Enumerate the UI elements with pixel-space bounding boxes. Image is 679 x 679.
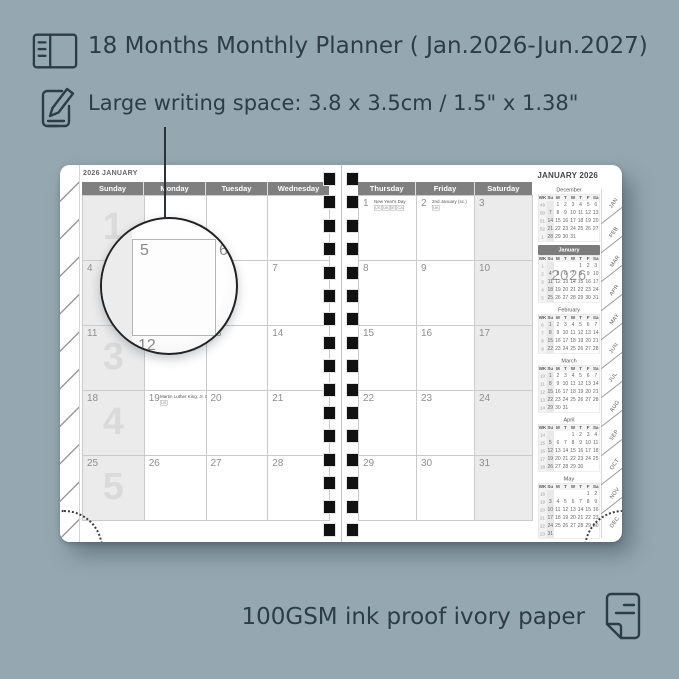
mini-cal-cell: 31 (569, 233, 577, 241)
mini-cal-cell: 23 (577, 455, 585, 463)
mini-cal-cell (584, 404, 592, 412)
mini-cal-cell: 7 (547, 209, 555, 217)
calendar-week-row: 8910 (359, 261, 533, 326)
mini-cal-cell: 25 (547, 294, 555, 302)
mini-cal-cell: 6 (554, 439, 562, 447)
mini-cal-cell: 3 (562, 372, 570, 380)
mini-cal-cell: 18 (554, 514, 562, 522)
mini-cal-cell: 26 (547, 463, 555, 471)
mini-cal-cell: 26 (554, 294, 562, 302)
date-number: 25 (87, 458, 98, 469)
mini-cal-cell: 9 (562, 209, 570, 217)
mini-cal-cell: 31 (562, 404, 570, 412)
mini-cal-cell: 22 (547, 345, 555, 353)
mini-cal-cell: 22 (577, 286, 585, 294)
date-number: 1 (363, 198, 369, 209)
mini-cal-cell: 29 (554, 233, 562, 241)
mini-cal-cell: 12 (547, 447, 555, 455)
mini-cal-cell: 16 (539, 447, 547, 455)
mini-cal-cell: 26 (562, 522, 570, 530)
calendar-day-cell: 27 (207, 456, 269, 521)
mini-cal-cell: 16 (554, 337, 562, 345)
binding-hole (324, 313, 335, 325)
mini-cal-cell: 7 (577, 498, 585, 506)
mini-cal-cell: 29 (569, 463, 577, 471)
mini-cal-cell: 25 (569, 345, 577, 353)
notebook-icon (31, 28, 79, 74)
mini-calendar: JanuaryWKSuMTWTFSa1123245678910311121314… (538, 245, 600, 303)
mini-cal-cell: 15 (584, 506, 592, 514)
mini-cal-cell: 11 (554, 506, 562, 514)
mini-cal-cell: 15 (554, 217, 562, 225)
binding-hole (324, 290, 335, 302)
binding-hole (347, 337, 358, 349)
mini-cal-cell: 27 (562, 294, 570, 302)
mini-cal-cell: 4 (569, 321, 577, 329)
date-number: 3 (479, 198, 485, 209)
mini-cal-cell: 26 (577, 396, 585, 404)
date-number: 19 (149, 393, 160, 404)
mini-cal-cell: 52 (539, 225, 547, 233)
date-number: 2 (421, 198, 427, 209)
magnified-below-date: 12 (138, 337, 156, 355)
calendar-day-cell: 17 (475, 326, 533, 391)
mini-cal-cell: 11 (569, 380, 577, 388)
mini-cal-cell: 30 (577, 463, 585, 471)
calendar-day-cell: 21 (268, 391, 330, 456)
binding-hole (347, 454, 358, 466)
mini-calendar: AprilWKSuMTWTFSa141234155678910111612131… (538, 416, 600, 472)
mini-cal-cell: 10 (539, 372, 547, 380)
feature-line-2: Large writing space: 3.8 x 3.5cm / 1.5" … (88, 91, 578, 115)
calendar-day-cell: 22 (359, 391, 417, 456)
day-header-cell: Friday (415, 182, 473, 195)
mini-cal-cell: 28 (592, 345, 600, 353)
mini-cal-cell: 14 (562, 447, 570, 455)
mini-cal-cell: 5 (584, 201, 592, 209)
magnifier-circle: 5 6 12 (100, 217, 238, 355)
mini-cal-cell: 5 (577, 321, 585, 329)
date-number: 22 (363, 393, 374, 404)
binding-hole (347, 220, 358, 232)
calendar-day-cell: 10 (475, 261, 533, 326)
country-code-badge: US (374, 205, 382, 211)
date-number: 11 (87, 328, 97, 339)
binding-hole (347, 477, 358, 489)
binding-hole (324, 501, 335, 513)
calendar-day-cell: 15 (359, 326, 417, 391)
mini-cal-cell (592, 463, 600, 471)
calendar-week-row: 222324 (359, 391, 533, 456)
mini-cal-cell: 12 (539, 388, 547, 396)
calendar-day-cell (268, 196, 330, 261)
calendar-day-cell: 418 (83, 391, 145, 456)
mini-cal-cell: 7 (592, 372, 600, 380)
mini-cal-cell: 8 (547, 329, 555, 337)
calendar-week-row: 525262728 (83, 456, 330, 521)
mini-cal-cell: 17 (584, 447, 592, 455)
mini-cal-cell: 19 (562, 514, 570, 522)
calendar-day-cell: 23 (417, 391, 475, 456)
date-number: 29 (363, 458, 374, 469)
mini-cal-cell: 1 (584, 490, 592, 498)
calendar-day-cell: 3 (475, 196, 533, 261)
mini-cal-cell: 14 (577, 506, 585, 514)
mini-calendar: DecemberWKSuMTWTFSa491234565078910111213… (538, 186, 600, 242)
calendar-week-row: 151617 (359, 326, 533, 391)
mini-cal-cell: 20 (569, 514, 577, 522)
mini-cal-cell: 17 (569, 217, 577, 225)
binding-hole (347, 313, 358, 325)
date-number: 16 (421, 328, 432, 339)
mini-cal-cell: 19 (539, 498, 547, 506)
country-code-badge: UK (432, 205, 440, 211)
mini-cal-cell: 16 (562, 217, 570, 225)
binding-hole (324, 196, 335, 208)
mini-cal-cell: 3 (569, 201, 577, 209)
mini-cal-cell: 19 (584, 217, 592, 225)
mini-cal-cell (554, 530, 562, 538)
mini-cal-cell: 6 (584, 372, 592, 380)
mini-cal-cell: 26 (584, 225, 592, 233)
mini-cal-cell: 14 (592, 380, 600, 388)
mini-calendar-title: February (538, 306, 600, 314)
mini-cal-cell: 10 (562, 380, 570, 388)
mini-cal-cell: 18 (577, 217, 585, 225)
mini-cal-cell: 15 (547, 388, 555, 396)
mini-cal-cell: 12 (577, 380, 585, 388)
calendar-day-cell: 7 (268, 261, 330, 326)
mini-cal-cell: 2 (577, 431, 585, 439)
left-day-header-row: SundayMondayTuesdayWednesday (82, 182, 329, 195)
mini-calendar: MarchWKSuMTWTFSa101234567118910111213141… (538, 357, 600, 413)
month-tab-label: MAY (608, 312, 620, 325)
mini-cal-cell: 6 (539, 321, 547, 329)
calendar-day-cell: 9 (417, 261, 475, 326)
mini-cal-cell: 24 (584, 455, 592, 463)
mini-cal-cell: 11 (539, 380, 547, 388)
country-code-badge: US (160, 400, 168, 406)
mini-cal-cell: 20 (539, 506, 547, 514)
mini-cal-cell: 23 (539, 530, 547, 538)
mini-calendar-grid: WKSuMTWTFSa10123456711891011121314121516… (538, 365, 600, 413)
binding-hole (324, 430, 335, 442)
right-page-title: JANUARY 2026 (480, 171, 598, 180)
mini-cal-cell: 15 (569, 447, 577, 455)
mini-cal-cell: 13 (592, 209, 600, 217)
mini-cal-cell: 28 (577, 522, 585, 530)
mini-cal-cell: 26 (577, 345, 585, 353)
date-number: 26 (149, 458, 160, 469)
country-code-badge: UK (382, 205, 390, 211)
calendar-day-cell: 19Martin Luther King, Jr. DayUS (145, 391, 207, 456)
calendar-day-cell: 20 (207, 391, 269, 456)
month-tab-label: APR (608, 283, 620, 296)
mini-cal-cell: 14 (539, 431, 547, 439)
calendar-day-cell: 29 (359, 456, 417, 521)
mini-cal-cell: 21 (547, 225, 555, 233)
mini-cal-cell (554, 431, 562, 439)
mini-cal-cell: 2 (554, 372, 562, 380)
mini-cal-cell: 27 (569, 522, 577, 530)
mini-cal-cell: 6 (569, 498, 577, 506)
mini-cal-cell: 8 (584, 498, 592, 506)
date-number: 18 (87, 393, 98, 404)
mini-cal-cell: 4 (539, 286, 547, 294)
calendar-day-cell: 8 (359, 261, 417, 326)
page-gutter-line (341, 165, 342, 542)
mini-cal-cell: 18 (539, 490, 547, 498)
date-number: 30 (421, 458, 432, 469)
mini-cal-cell: 19 (577, 388, 585, 396)
mini-cal-cell: 5 (547, 439, 555, 447)
day-header-cell: Monday (143, 182, 205, 195)
mini-calendar-grid: WKSuMTWTFSa61234567789101112131481516171… (538, 314, 600, 354)
mini-cal-cell: 6 (592, 201, 600, 209)
mini-cal-cell: 17 (539, 455, 547, 463)
month-tab-label: SEP (608, 428, 620, 441)
holiday-note-text: Martin Luther King, Jr. Day (160, 394, 213, 399)
mini-cal-cell: 20 (592, 217, 600, 225)
mini-cal-cell: 10 (562, 329, 570, 337)
mini-cal-cell: 23 (554, 396, 562, 404)
mini-cal-cell (562, 530, 570, 538)
mini-cal-cell: 51 (539, 217, 547, 225)
mini-cal-cell: 23 (562, 225, 570, 233)
mini-cal-cell (554, 490, 562, 498)
mini-cal-cell: 22 (547, 396, 555, 404)
footer-claim: 100GSM ink proof ivory paper (180, 604, 585, 630)
mini-cal-cell: 7 (592, 321, 600, 329)
left-page-title: 2026 JANUARY (83, 170, 138, 177)
mini-cal-cell: 18 (539, 463, 547, 471)
week-number-watermark: 5 (83, 466, 144, 509)
mini-cal-cell: 11 (569, 329, 577, 337)
mini-cal-cell (547, 201, 555, 209)
day-header-cell: Tuesday (205, 182, 267, 195)
mini-cal-cell: 8 (547, 380, 555, 388)
mini-cal-cell: 24 (569, 225, 577, 233)
mini-cal-cell (592, 404, 600, 412)
mini-cal-cell: 29 (577, 294, 585, 302)
mini-cal-cell: 21 (562, 455, 570, 463)
date-number: 24 (479, 393, 490, 404)
mini-cal-cell: 19 (547, 455, 555, 463)
mini-cal-cell: 15 (539, 439, 547, 447)
calendar-day-cell: 1New Year's DayUSUKIECA (359, 196, 417, 261)
mini-cal-cell: 22 (539, 522, 547, 530)
mini-cal-cell: 9 (592, 498, 600, 506)
callout-line (164, 127, 166, 219)
day-header-cell: Thursday (358, 182, 415, 195)
mini-calendar-grid: WKSuMTWTFSa14123415567891011161213141516… (538, 424, 600, 472)
calendar-day-cell: 31 (475, 456, 533, 521)
mini-cal-cell: 28 (592, 396, 600, 404)
mini-cal-cell: 13 (539, 396, 547, 404)
mini-cal-cell: 24 (562, 396, 570, 404)
mini-cal-cell: 27 (584, 396, 592, 404)
date-number: 7 (272, 263, 278, 274)
country-code-badge: CA (396, 205, 404, 211)
mini-cal-cell (584, 463, 592, 471)
date-number: 17 (479, 328, 490, 339)
edit-note-icon (37, 82, 79, 132)
mini-cal-cell: 14 (539, 404, 547, 412)
mini-cal-cell: 6 (584, 321, 592, 329)
calendar-day-cell: 30 (417, 456, 475, 521)
binding-hole (324, 407, 335, 419)
date-number: 8 (363, 263, 369, 274)
binding-hole (347, 501, 358, 513)
mini-cal-cell: 31 (592, 294, 600, 302)
mini-cal-cell: 9 (554, 329, 562, 337)
mini-cal-cell (562, 490, 570, 498)
mini-cal-cell (547, 431, 555, 439)
mini-cal-cell: 2 (554, 321, 562, 329)
holiday-note-text: 2nd January (sc.) (432, 199, 467, 204)
binding-hole (324, 384, 335, 396)
mini-cal-cell (569, 490, 577, 498)
paper-sheet-icon (599, 590, 643, 646)
binding-hole (324, 243, 335, 255)
mini-cal-year-watermark: 2026 (541, 267, 597, 284)
mini-cal-cell: 19 (577, 337, 585, 345)
mini-cal-cell: 13 (569, 506, 577, 514)
holiday-note-text: New Year's Day (374, 199, 406, 204)
calendar-week-row: 1New Year's DayUSUKIECA22nd January (sc.… (359, 196, 533, 261)
date-number: 23 (421, 393, 432, 404)
month-tab-label: OCT (608, 457, 620, 471)
mini-cal-cell: 28 (547, 233, 555, 241)
mini-cal-cell: 1 (547, 372, 555, 380)
mini-cal-cell: 23 (584, 286, 592, 294)
mini-cal-cell (547, 490, 555, 498)
mini-cal-cell: 24 (547, 522, 555, 530)
date-number: 10 (479, 263, 490, 274)
mini-cal-cell: 12 (562, 506, 570, 514)
mini-cal-cell: 23 (554, 345, 562, 353)
mini-cal-cell: 9 (539, 345, 547, 353)
mini-cal-cell: 19 (554, 286, 562, 294)
mini-cal-cell: 3 (562, 321, 570, 329)
date-number: 28 (272, 458, 283, 469)
mini-cal-cell: 7 (562, 439, 570, 447)
mini-calendar-grid: WKSuMTWTFSa49123456507891011121351141516… (538, 194, 600, 242)
mini-cal-cell: 4 (569, 372, 577, 380)
mini-cal-cell: 27 (584, 345, 592, 353)
mini-cal-cell: 21 (577, 514, 585, 522)
binding-hole (347, 196, 358, 208)
mini-cal-cell (592, 233, 600, 241)
month-tab-label: JUL (607, 371, 618, 383)
mini-cal-cell: 18 (547, 286, 555, 294)
date-number: 14 (272, 328, 283, 339)
mini-cal-cell: 7 (539, 329, 547, 337)
mini-cal-cell: 15 (547, 337, 555, 345)
mini-cal-cell: 8 (569, 439, 577, 447)
mini-cal-cell: 4 (554, 498, 562, 506)
mini-calendar-title: January (538, 245, 600, 255)
mini-cal-cell: 3 (547, 498, 555, 506)
binding-hole (347, 407, 358, 419)
binding-hole (324, 220, 335, 232)
calendar-day-cell: 28 (268, 456, 330, 521)
mini-cal-cell: 18 (569, 337, 577, 345)
mini-calendar-title: March (538, 357, 600, 365)
mini-cal-cell (577, 404, 585, 412)
magnified-date: 5 (140, 242, 149, 260)
date-number: 27 (211, 458, 222, 469)
day-header-cell: Wednesday (267, 182, 329, 195)
mini-cal-cell (577, 530, 585, 538)
month-tab-label: JAN (608, 197, 619, 210)
mini-cal-cell: 29 (547, 404, 555, 412)
mini-cal-cell (577, 233, 585, 241)
mini-cal-cell: 25 (577, 225, 585, 233)
binding-hole (324, 173, 335, 185)
date-number: 21 (272, 393, 283, 404)
mini-cal-cell: 27 (554, 463, 562, 471)
mini-cal-cell: 30 (554, 404, 562, 412)
mini-cal-cell: 2 (592, 490, 600, 498)
date-number: 4 (87, 263, 93, 274)
mini-cal-cell (569, 530, 577, 538)
calendar-week-row: 41819Martin Luther King, Jr. DayUS2021 (83, 391, 330, 456)
mini-cal-cell: 4 (592, 431, 600, 439)
mini-cal-cell: 14 (592, 329, 600, 337)
mini-cal-cell: 13 (554, 447, 562, 455)
mini-cal-cell: 20 (584, 337, 592, 345)
binding-hole (324, 524, 335, 536)
binding-hole (347, 430, 358, 442)
mini-cal-cell: 50 (539, 209, 547, 217)
mini-cal-cell: 5 (539, 294, 547, 302)
date-number: 9 (421, 263, 427, 274)
calendar-day-cell: 16 (417, 326, 475, 391)
mini-cal-cell: 10 (584, 439, 592, 447)
mini-cal-cell: 24 (562, 345, 570, 353)
mini-cal-cell: 11 (577, 209, 585, 217)
month-tab-strip: JANFEBMARAPRMAYJUNJULAUGSEPOCTNOVDEC (601, 189, 622, 538)
mini-calendar-title: April (538, 416, 600, 424)
mini-cal-cell: 31 (547, 530, 555, 538)
mini-cal-cell: 25 (569, 396, 577, 404)
mini-cal-cell: 20 (584, 388, 592, 396)
mini-cal-cell: 22 (584, 514, 592, 522)
day-header-cell: Saturday (474, 182, 532, 195)
day-header-cell: Sunday (82, 182, 143, 195)
calendar-day-cell: 26 (145, 456, 207, 521)
mini-cal-cell: 25 (554, 522, 562, 530)
calendar-day-cell: 525 (83, 456, 145, 521)
mini-cal-cell: 12 (577, 329, 585, 337)
country-code-badge: IE (390, 205, 396, 211)
mini-cal-cell: 25 (592, 455, 600, 463)
binding-hole (347, 267, 358, 279)
binding-hole (324, 267, 335, 279)
magnified-next-date: 6 (219, 242, 228, 260)
mini-cal-cell (562, 431, 570, 439)
mini-calendar: FebruaryWKSuMTWTFSa612345677891011121314… (538, 306, 600, 354)
binding-hole (347, 524, 358, 536)
mini-cal-cell: 17 (562, 388, 570, 396)
mini-cal-cell: 13 (584, 380, 592, 388)
mini-cal-cell: 1 (539, 233, 547, 241)
mini-cal-cell: 4 (577, 201, 585, 209)
calendar-day-cell: 22nd January (sc.)UK (417, 196, 475, 261)
mini-calendar-sidebar: DecemberWKSuMTWTFSa491234565078910111213… (538, 186, 600, 531)
date-number: 20 (211, 393, 222, 404)
